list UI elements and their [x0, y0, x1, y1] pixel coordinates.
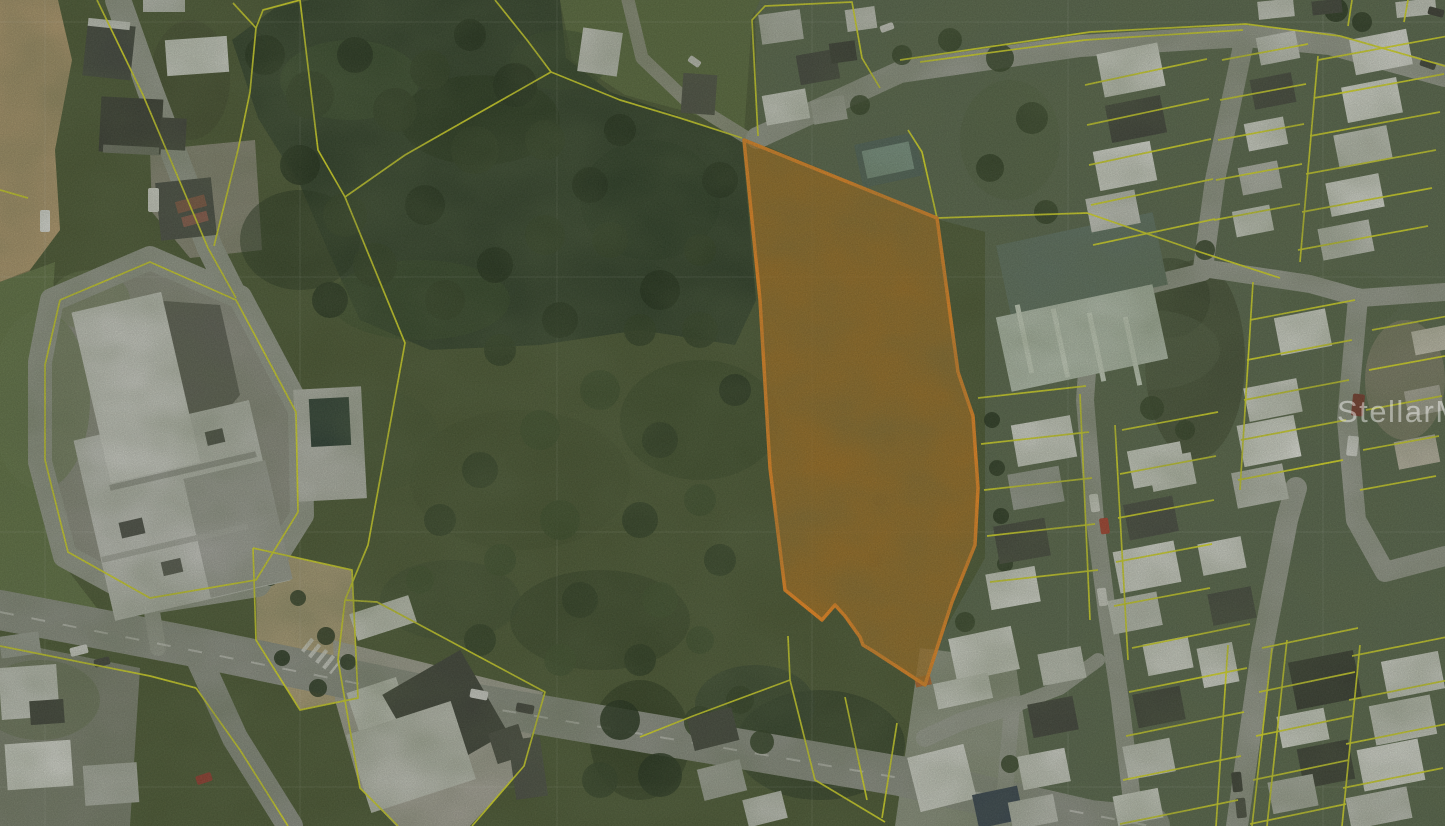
- aerial-parcel-map: StellarMLS: [0, 0, 1445, 826]
- satellite-map-canvas: [0, 0, 1445, 826]
- light-speckle-overlay: [0, 0, 1445, 826]
